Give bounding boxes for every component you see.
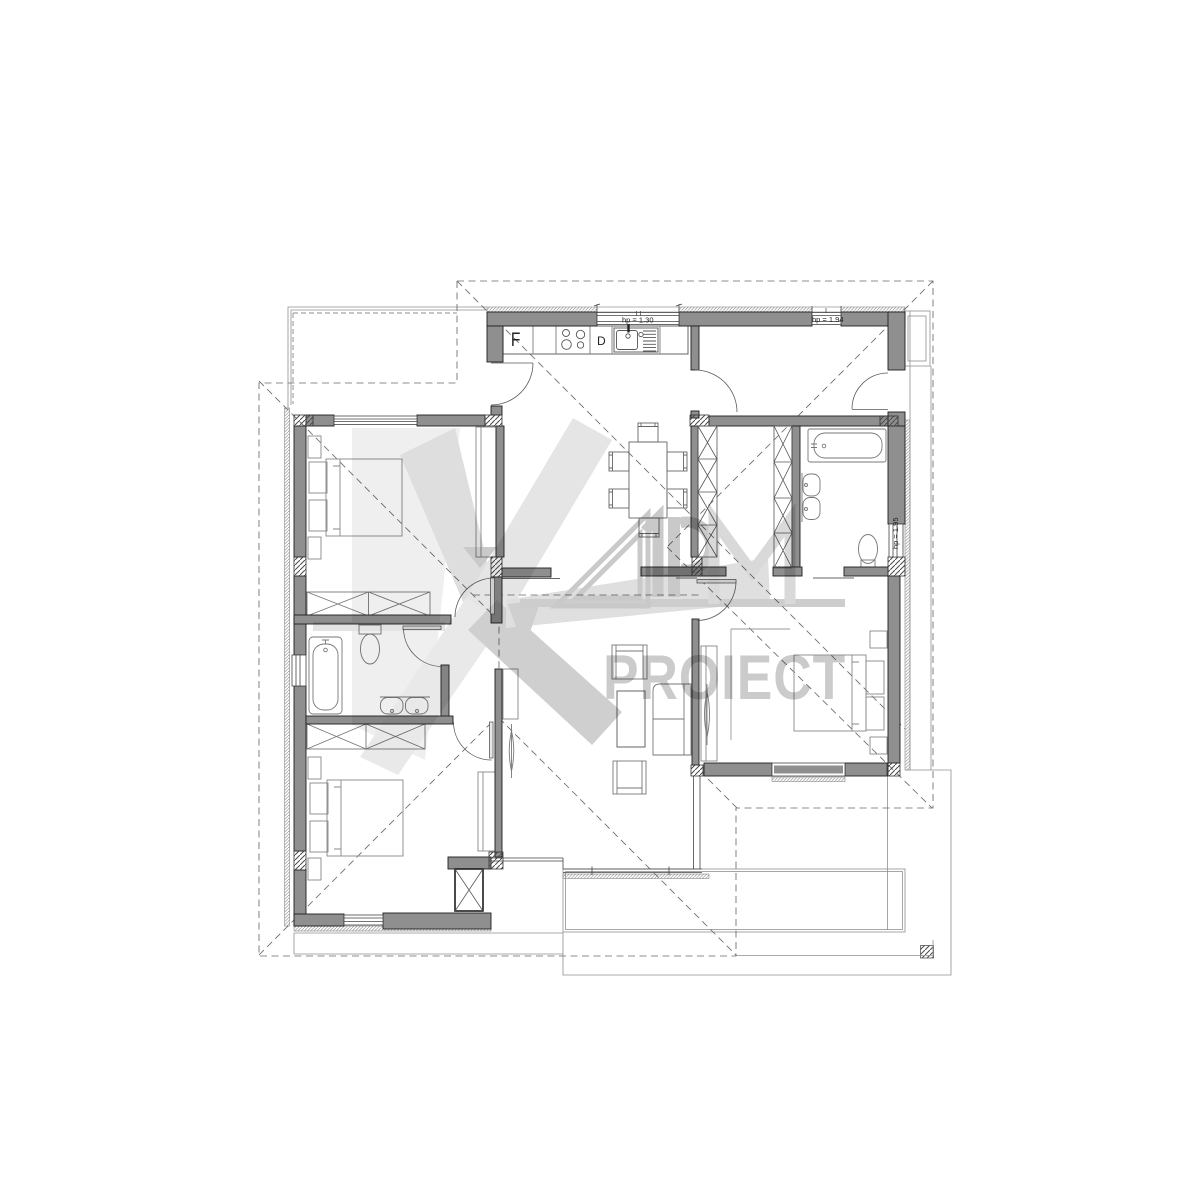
- svg-text:hp = 1.94: hp = 1.94: [812, 315, 844, 324]
- svg-text:D: D: [597, 334, 606, 348]
- svg-text:PROIECT: PROIECT: [603, 643, 846, 713]
- svg-text:F: F: [511, 329, 521, 351]
- svg-text:hp = 1.95: hp = 1.95: [891, 518, 900, 550]
- svg-text:hp = 1.30: hp = 1.30: [622, 316, 654, 325]
